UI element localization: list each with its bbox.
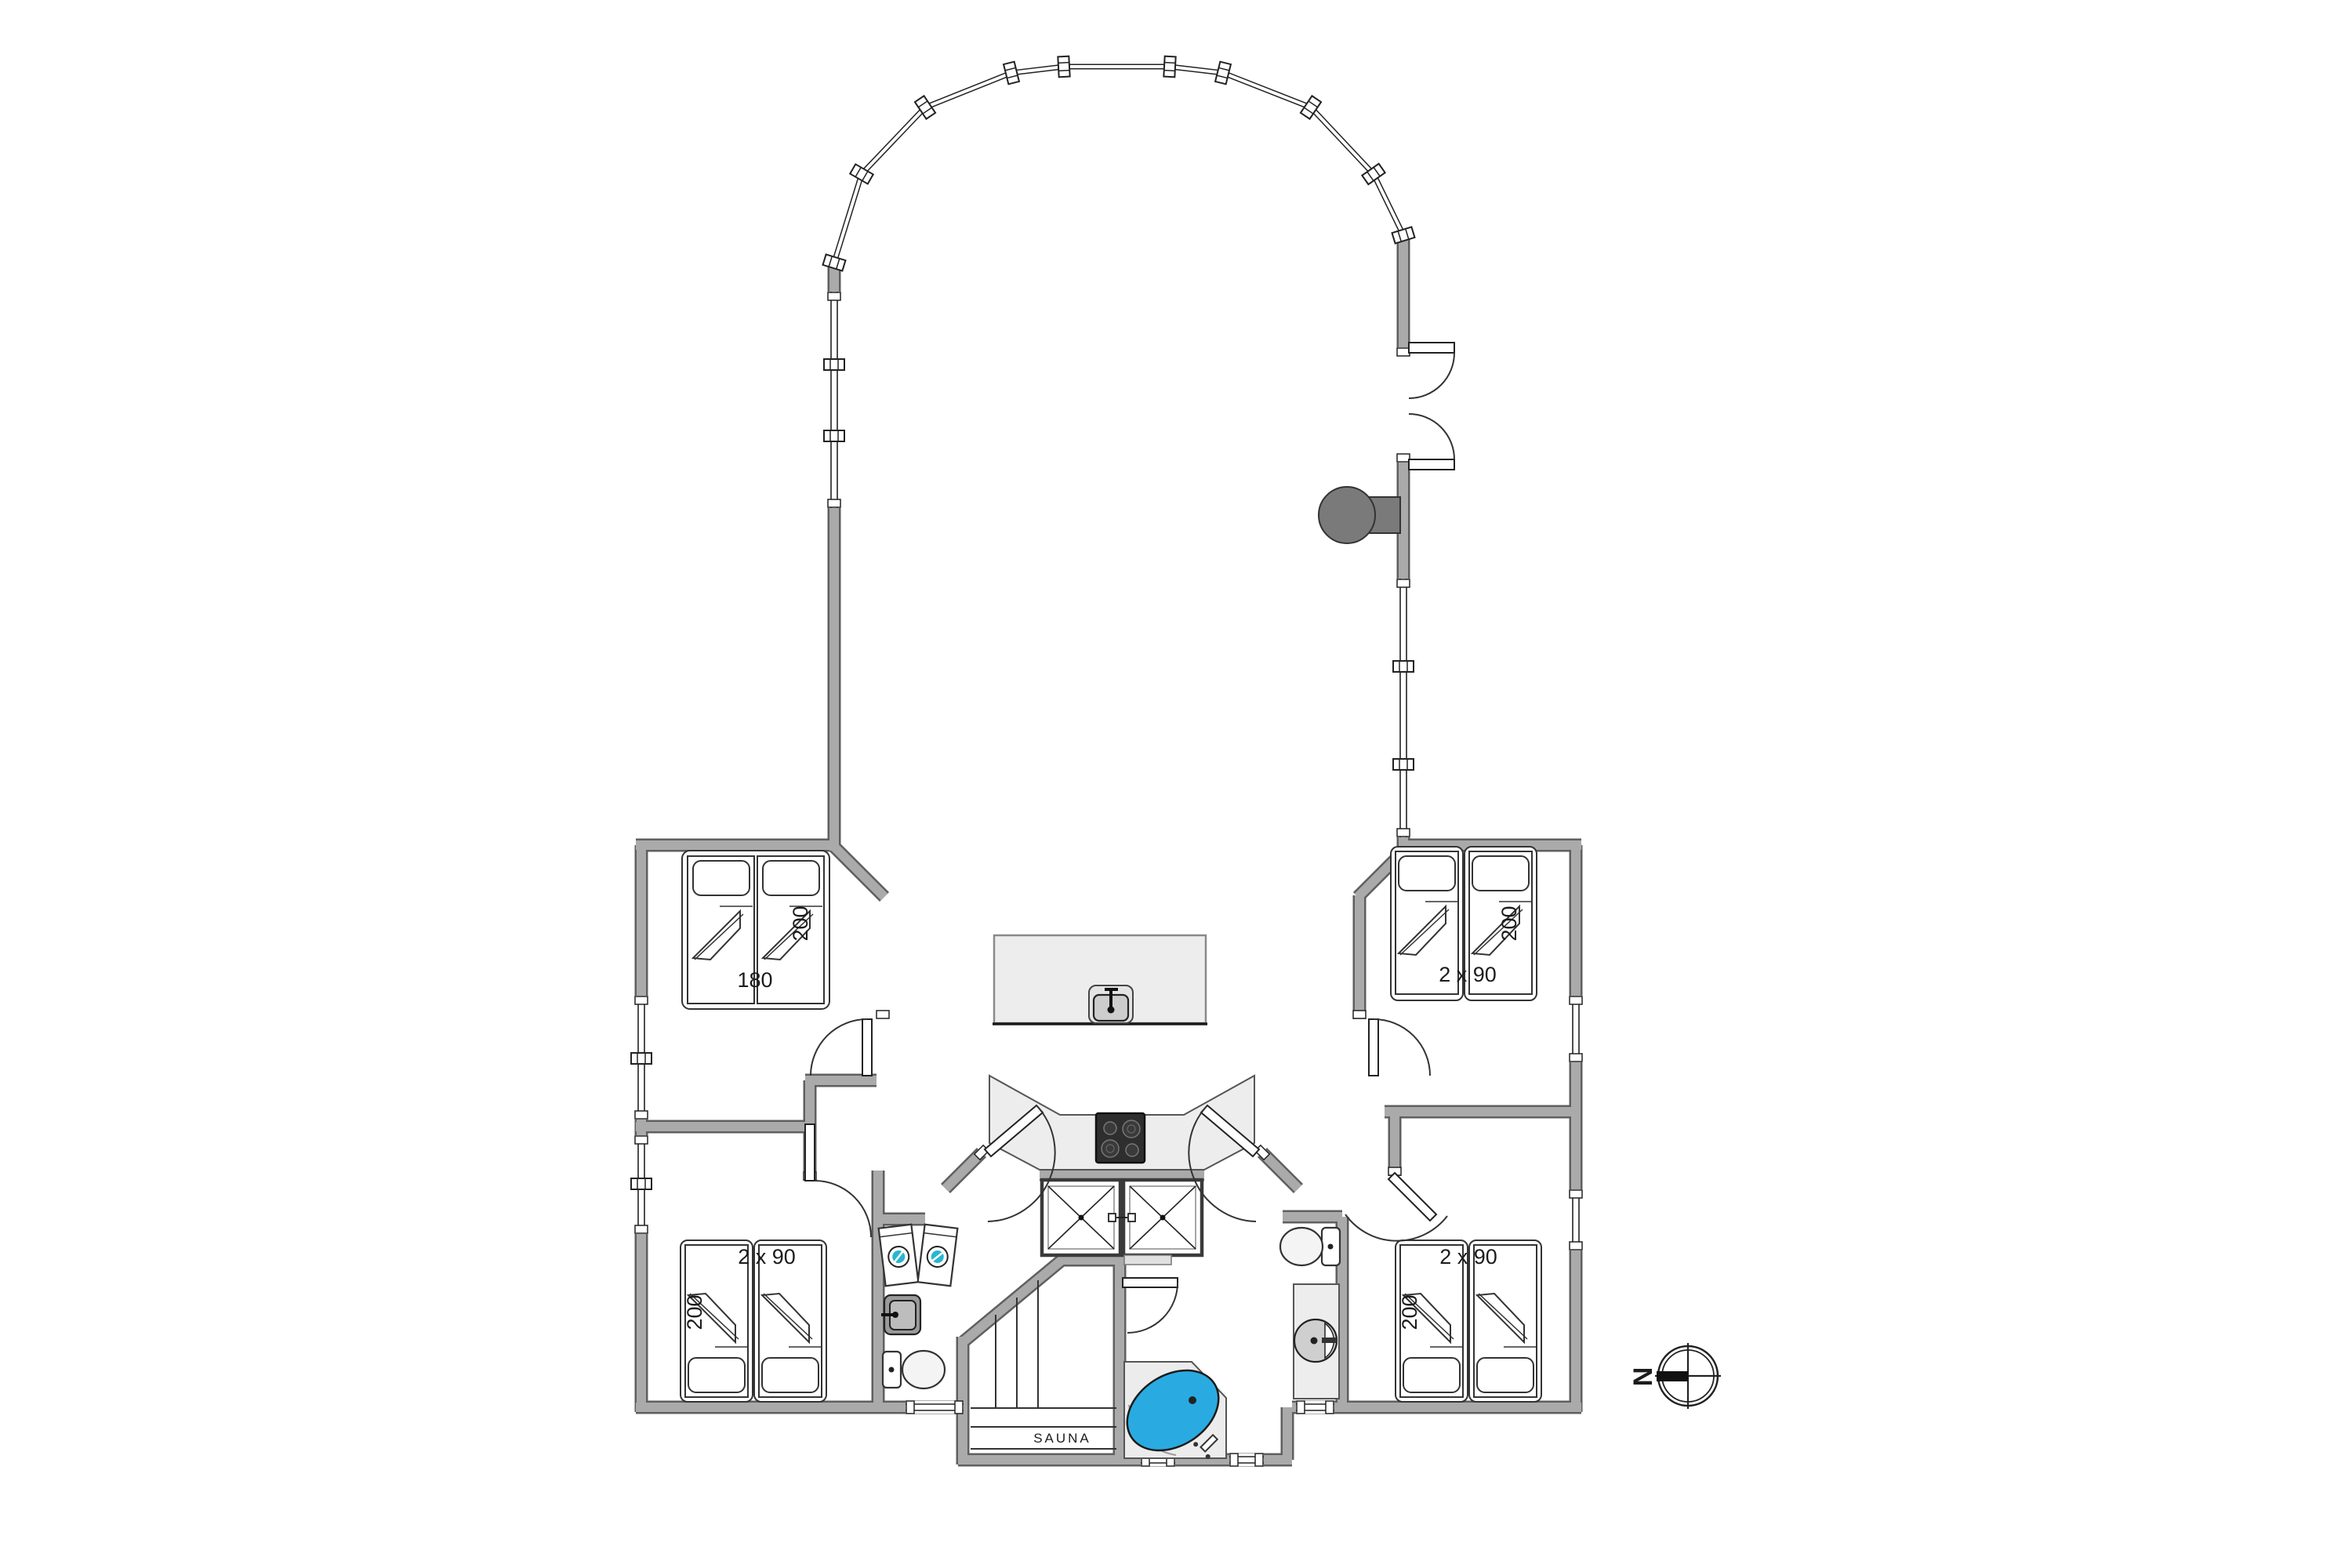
sauna-label: SAUNA bbox=[1033, 1431, 1091, 1446]
shower-left bbox=[1042, 1180, 1122, 1255]
window-bedrooms-east-lower bbox=[1570, 1190, 1582, 1250]
bathtub-drain-icon bbox=[1189, 1396, 1196, 1404]
wood-stove-body bbox=[1319, 487, 1375, 543]
window-bedrooms-west-upper bbox=[631, 996, 652, 1119]
door-bedroom-bottom-left bbox=[805, 1124, 871, 1237]
bed-width-label-bottom-left: 2 x 90 bbox=[738, 1245, 796, 1269]
door-bedroom-top-left bbox=[811, 1019, 872, 1076]
toilet-bowl bbox=[902, 1351, 945, 1388]
window-bedrooms-west-lower bbox=[631, 1136, 652, 1233]
vanity-right bbox=[1294, 1284, 1339, 1399]
burner-icon bbox=[1123, 1120, 1140, 1138]
floor-plan-page: SAUNA bbox=[0, 0, 2352, 1568]
toilet-left bbox=[883, 1351, 945, 1388]
compass-north-pointer-icon bbox=[1657, 1371, 1688, 1381]
shower-step bbox=[1124, 1255, 1171, 1265]
bed-length-label-bottom-right: 200 bbox=[1398, 1294, 1421, 1330]
washing-machine bbox=[879, 1225, 919, 1287]
arch-glazing-outer bbox=[834, 67, 1403, 263]
shower-door-handle-icon bbox=[1109, 1214, 1116, 1221]
kitchen-island bbox=[993, 935, 1207, 1024]
compass-north-label: N bbox=[1628, 1367, 1658, 1387]
cooktop bbox=[1096, 1113, 1145, 1163]
window-south-left bbox=[906, 1401, 964, 1414]
burner-icon bbox=[1126, 1144, 1138, 1156]
vanity-faucet-icon bbox=[1322, 1338, 1338, 1343]
sauna-room: SAUNA bbox=[971, 1280, 1116, 1449]
window-hall-west bbox=[824, 292, 844, 508]
arch-glazing-inner bbox=[834, 67, 1403, 263]
compass: N bbox=[1628, 1343, 1721, 1409]
toilet-bowl bbox=[1280, 1228, 1323, 1265]
bed-length-label-bottom-left: 200 bbox=[683, 1294, 706, 1330]
bathroom-right bbox=[1280, 1228, 1340, 1399]
door-bedroom-bottom-right bbox=[1345, 1173, 1447, 1241]
window-bedrooms-east-upper bbox=[1570, 996, 1582, 1062]
shower-door-handle-icon bbox=[1128, 1214, 1135, 1221]
toilet-right bbox=[1280, 1228, 1340, 1265]
showers bbox=[1042, 1180, 1202, 1265]
window-south-bath bbox=[1296, 1401, 1334, 1414]
window-hall-east bbox=[1393, 579, 1414, 837]
burner-icon bbox=[1102, 1140, 1119, 1157]
door-bedroom-top-right bbox=[1369, 1019, 1430, 1076]
bed-width-label-bottom-right: 2 x 90 bbox=[1439, 1245, 1497, 1269]
bed-length-label-top-left: 200 bbox=[789, 906, 812, 941]
dryer bbox=[918, 1225, 958, 1287]
cooktop-surface bbox=[1096, 1113, 1145, 1163]
bed-length-label-top-right: 200 bbox=[1497, 906, 1521, 941]
bathroom-left-sink bbox=[881, 1295, 920, 1334]
door-tub-room bbox=[1123, 1278, 1178, 1333]
window-tub-room-2 bbox=[1229, 1454, 1264, 1466]
island-sink bbox=[1089, 985, 1133, 1023]
bed-width-label-top-left: 180 bbox=[737, 968, 772, 992]
wood-stove bbox=[1319, 487, 1400, 543]
burner-icon bbox=[1104, 1122, 1116, 1134]
bathroom-left bbox=[879, 1225, 958, 1388]
floor-plan-drawing: SAUNA bbox=[0, 0, 2352, 1568]
bathtub bbox=[1112, 1354, 1234, 1467]
entrance-double-door bbox=[1409, 343, 1454, 470]
shower-right bbox=[1122, 1180, 1202, 1255]
arched-window-facade bbox=[823, 56, 1415, 271]
bed-width-label-top-right: 2 x 90 bbox=[1439, 963, 1497, 986]
